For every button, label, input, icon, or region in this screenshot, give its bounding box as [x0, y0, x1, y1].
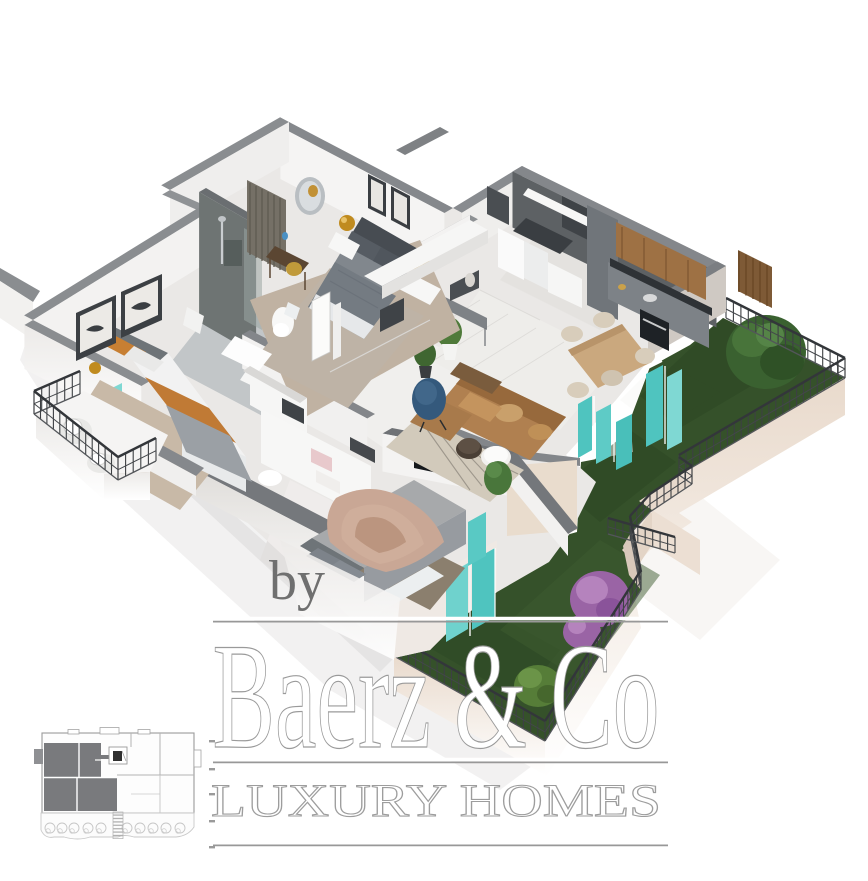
- svg-text:LUXURY HOMES: LUXURY HOMES: [211, 775, 661, 827]
- svg-text:Baerz & Co: Baerz & Co: [213, 612, 660, 780]
- svg-text:by: by: [269, 550, 325, 612]
